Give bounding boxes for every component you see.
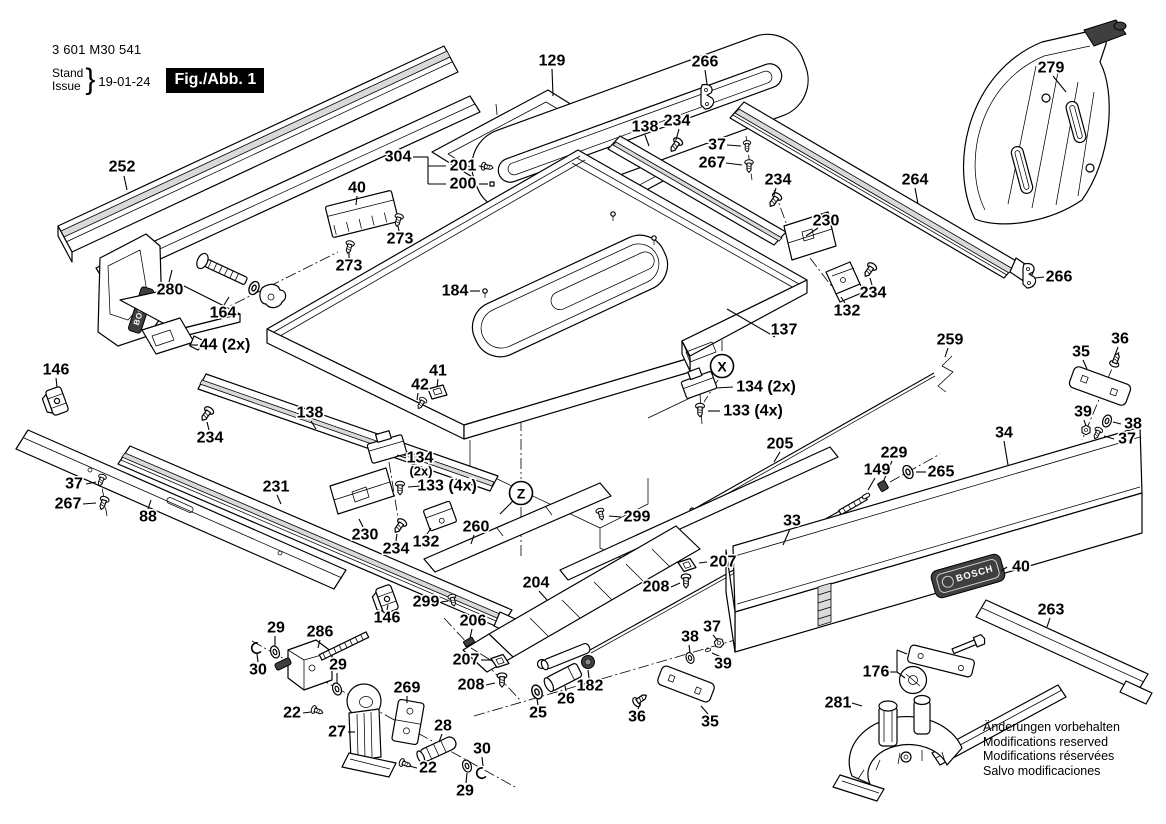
part-label-39-75: 39 bbox=[714, 656, 732, 673]
washer-38-right bbox=[1101, 414, 1113, 429]
part-label-252-0: 252 bbox=[109, 159, 136, 176]
part-label-138-7: 138 bbox=[632, 119, 659, 136]
washer-38-bottom bbox=[685, 651, 696, 664]
part-label-265-31: 265 bbox=[928, 464, 955, 481]
part-label-304-1: 304 bbox=[385, 149, 412, 166]
part-label-230-13: 230 bbox=[813, 213, 840, 230]
brace-glyph: } bbox=[85, 63, 95, 97]
exploded-view-drawing: BOSCH bbox=[0, 0, 1166, 824]
part-label-41-33: 41 bbox=[429, 363, 447, 380]
part-label-266-14: 266 bbox=[1046, 269, 1073, 286]
nut-182 bbox=[580, 654, 597, 671]
modification-notes: Änderungen vorbehalten Modifications res… bbox=[983, 720, 1120, 778]
leader-line bbox=[1035, 277, 1044, 278]
part-label-299-48: 299 bbox=[624, 509, 651, 526]
leader-line bbox=[500, 501, 513, 514]
part-label-204-49: 204 bbox=[523, 575, 550, 592]
pin-149 bbox=[862, 492, 870, 499]
screw-37-top bbox=[743, 141, 751, 152]
pin-39-bottom bbox=[705, 648, 711, 652]
part-label-39-24: 39 bbox=[1074, 404, 1092, 421]
beam-slot bbox=[818, 583, 831, 626]
part-label-207-55: 207 bbox=[453, 652, 480, 669]
leader-line bbox=[470, 629, 472, 638]
part-label-88-40: 88 bbox=[139, 509, 157, 526]
part-label-1334x-43: 133 (4x) bbox=[417, 478, 477, 495]
part-label-40-84: 40 bbox=[348, 180, 366, 197]
blade-guard-279 bbox=[964, 20, 1126, 224]
part-label-25-68: 25 bbox=[529, 705, 547, 722]
part-label-37-74: 37 bbox=[703, 619, 721, 636]
leader-line bbox=[1047, 618, 1050, 627]
washer-29-b bbox=[331, 682, 343, 697]
leader-line bbox=[466, 773, 467, 783]
part-label-281-79: 281 bbox=[825, 695, 852, 712]
part-label-36-22: 36 bbox=[1111, 331, 1129, 348]
part-label-267-39: 267 bbox=[55, 496, 82, 513]
part-label-273-86: 273 bbox=[336, 258, 363, 275]
part-label-164-81: 164 bbox=[210, 305, 237, 322]
part-label-260-47: 260 bbox=[463, 519, 490, 536]
spring-wire-259 bbox=[938, 356, 953, 392]
screw-208-left bbox=[497, 673, 507, 687]
part-label-266-5: 266 bbox=[692, 54, 719, 71]
part-label-234-8: 234 bbox=[664, 113, 691, 130]
part-label-229-29: 229 bbox=[881, 445, 908, 462]
part-label-35-23: 35 bbox=[1072, 344, 1090, 361]
bracket-132-left bbox=[423, 501, 457, 531]
screw-267-top bbox=[745, 160, 754, 173]
leader-line bbox=[868, 478, 875, 490]
washer-265 bbox=[901, 464, 915, 480]
leader-line bbox=[897, 650, 907, 654]
part-label-29-60: 29 bbox=[329, 657, 347, 674]
part-label-176-78: 176 bbox=[863, 664, 890, 681]
part-label-286-58: 286 bbox=[307, 624, 334, 641]
part-label-269-63: 269 bbox=[394, 680, 421, 697]
part-label-259-21: 259 bbox=[937, 332, 964, 349]
nut-229 bbox=[877, 480, 888, 492]
part-label-22-65: 22 bbox=[419, 760, 437, 777]
clamp-146-left bbox=[40, 386, 69, 418]
part-label-184-18: 184 bbox=[442, 283, 469, 300]
leader-line bbox=[1084, 420, 1086, 426]
part-label-22-61: 22 bbox=[283, 705, 301, 722]
part-label-263-77: 263 bbox=[1038, 602, 1065, 619]
part-label-1342x-19: 134 (2x) bbox=[736, 379, 796, 396]
leader-line bbox=[169, 270, 172, 282]
pin-200 bbox=[490, 182, 494, 186]
leader-line bbox=[727, 145, 741, 146]
part-label-37-9: 37 bbox=[708, 137, 726, 154]
leader-line bbox=[83, 503, 96, 504]
leader-line bbox=[609, 516, 621, 517]
part-label-26-69: 26 bbox=[557, 691, 575, 708]
part-label-146-83: 146 bbox=[43, 362, 70, 379]
part-label-231-37: 231 bbox=[263, 479, 290, 496]
plate-35-bottom bbox=[656, 665, 715, 704]
leader-line bbox=[726, 163, 742, 165]
screw-208-right bbox=[681, 574, 691, 588]
figure-badge: Fig./Abb. 1 bbox=[166, 68, 264, 93]
washer-29-a bbox=[269, 645, 281, 660]
washer-29-c bbox=[461, 759, 473, 774]
clamp-set-176 bbox=[900, 634, 987, 694]
parts-diagram-page: BOSCH bbox=[0, 0, 1166, 824]
extension-beam-34: BOSCH bbox=[726, 427, 1142, 652]
part-label-146-53: 146 bbox=[374, 610, 401, 627]
note-fr: Modifications réservées bbox=[983, 749, 1120, 764]
leader-line bbox=[124, 176, 127, 190]
setscrew-22-b bbox=[398, 758, 412, 770]
nut-37-bottom bbox=[714, 637, 725, 649]
part-label-234-36: 234 bbox=[197, 430, 224, 447]
part-label-208-51: 208 bbox=[643, 579, 670, 596]
leader-line bbox=[56, 378, 57, 387]
part-label-132-16: 132 bbox=[834, 303, 861, 320]
gauge-knob-a bbox=[879, 701, 897, 746]
part-label-273-85: 273 bbox=[387, 231, 414, 248]
note-en: Modifications reserved bbox=[983, 735, 1120, 750]
part-label-207-50: 207 bbox=[710, 554, 737, 571]
part-label-279-6: 279 bbox=[1038, 60, 1065, 77]
screw-299-right bbox=[595, 507, 606, 521]
leader-line bbox=[303, 712, 311, 713]
title-block: 3 601 M30 541 Stand Issue } 19-01-24 Fig… bbox=[52, 42, 264, 97]
issue-label: Issue bbox=[52, 80, 83, 93]
part-label-27-62: 27 bbox=[328, 724, 346, 741]
screw-234-c bbox=[861, 261, 878, 279]
clip-30-b bbox=[475, 767, 486, 779]
part-label-201-2: 201 bbox=[450, 158, 477, 175]
stop-plate-230-left bbox=[330, 468, 394, 514]
part-label-38-73: 38 bbox=[681, 629, 699, 646]
part-label-36-71: 36 bbox=[628, 709, 646, 726]
view-marker-letter-X: X bbox=[717, 359, 727, 375]
type-number: 3 601 M30 541 bbox=[52, 42, 264, 57]
part-label-208-56: 208 bbox=[458, 677, 485, 694]
screw-133-right bbox=[696, 403, 705, 417]
part-label-206-54: 206 bbox=[460, 613, 487, 630]
issue-date: 19-01-24 bbox=[98, 74, 150, 89]
setscrew-22-a bbox=[310, 705, 324, 717]
angle-bracket-27 bbox=[342, 684, 396, 777]
plate-35-right bbox=[1068, 365, 1132, 406]
part-label-280-80: 280 bbox=[157, 282, 184, 299]
part-label-28-64: 28 bbox=[434, 718, 452, 735]
leader-line bbox=[486, 683, 495, 685]
clip-30-a bbox=[250, 642, 261, 654]
leader-line bbox=[852, 703, 862, 706]
leader-line bbox=[945, 348, 948, 357]
part-label-35-72: 35 bbox=[701, 714, 719, 731]
nut-39-right bbox=[1082, 425, 1090, 434]
view-marker-letter-Z: Z bbox=[517, 486, 526, 502]
part-label-129-4: 129 bbox=[539, 53, 566, 70]
screw-36-bottom bbox=[631, 691, 649, 708]
part-label-230-44: 230 bbox=[352, 527, 379, 544]
part-label-264-12: 264 bbox=[902, 172, 929, 189]
part-label-234-45: 234 bbox=[383, 541, 410, 558]
part-label-149-30: 149 bbox=[864, 462, 891, 479]
part-label-137-17: 137 bbox=[771, 322, 798, 339]
part-label-30-66: 30 bbox=[473, 741, 491, 758]
part-label-2x-42: (2x) bbox=[409, 464, 432, 479]
part-label-267-10: 267 bbox=[699, 155, 726, 172]
screw-234-d bbox=[198, 405, 215, 423]
gauge-knob-b bbox=[914, 696, 930, 735]
part-label-34-27: 34 bbox=[995, 425, 1013, 442]
part-label-132-46: 132 bbox=[413, 534, 440, 551]
part-label-30-59: 30 bbox=[249, 662, 267, 679]
washer-25 bbox=[530, 684, 544, 701]
part-label-234-11: 234 bbox=[765, 172, 792, 189]
screw-133-left bbox=[396, 481, 405, 495]
leader-line bbox=[671, 583, 680, 587]
leader-line bbox=[1004, 441, 1008, 465]
part-label-299-52: 299 bbox=[413, 594, 440, 611]
part-label-205-28: 205 bbox=[767, 436, 794, 453]
part-label-37-26: 37 bbox=[1118, 431, 1136, 448]
control-rod-205 bbox=[690, 373, 935, 514]
leader-line bbox=[1113, 422, 1121, 424]
leader-line bbox=[277, 495, 281, 504]
leader-line bbox=[482, 757, 483, 766]
part-label-33-32: 33 bbox=[783, 513, 801, 530]
leader-line bbox=[409, 766, 417, 768]
screw-267-left bbox=[97, 495, 110, 511]
screw-234-e bbox=[391, 517, 408, 535]
part-label-138-35: 138 bbox=[297, 405, 324, 422]
part-label-29-57: 29 bbox=[267, 620, 285, 637]
bracket-132-right bbox=[826, 262, 864, 302]
part-label-37-38: 37 bbox=[65, 476, 83, 493]
clamp-266-right bbox=[1023, 264, 1036, 288]
leader-line bbox=[689, 645, 690, 653]
leader-line bbox=[1083, 360, 1087, 369]
leader-line bbox=[716, 387, 733, 388]
plate-269 bbox=[392, 699, 425, 745]
leader-line bbox=[699, 562, 707, 563]
part-label-1334x-20: 133 (4x) bbox=[723, 403, 783, 420]
note-de: Änderungen vorbehalten bbox=[983, 720, 1120, 735]
part-label-29-67: 29 bbox=[456, 783, 474, 800]
part-label-200-3: 200 bbox=[450, 176, 477, 193]
note-es: Salvo modificaciones bbox=[983, 764, 1120, 779]
part-label-442x-82: 44 (2x) bbox=[200, 337, 251, 354]
lock-assembly-286 bbox=[274, 632, 368, 690]
part-label-182-70: 182 bbox=[577, 678, 604, 695]
part-label-234-15: 234 bbox=[860, 285, 887, 302]
part-label-40-76: 40 bbox=[1012, 559, 1030, 576]
leader-line bbox=[539, 591, 547, 600]
part-label-42-34: 42 bbox=[411, 377, 429, 394]
